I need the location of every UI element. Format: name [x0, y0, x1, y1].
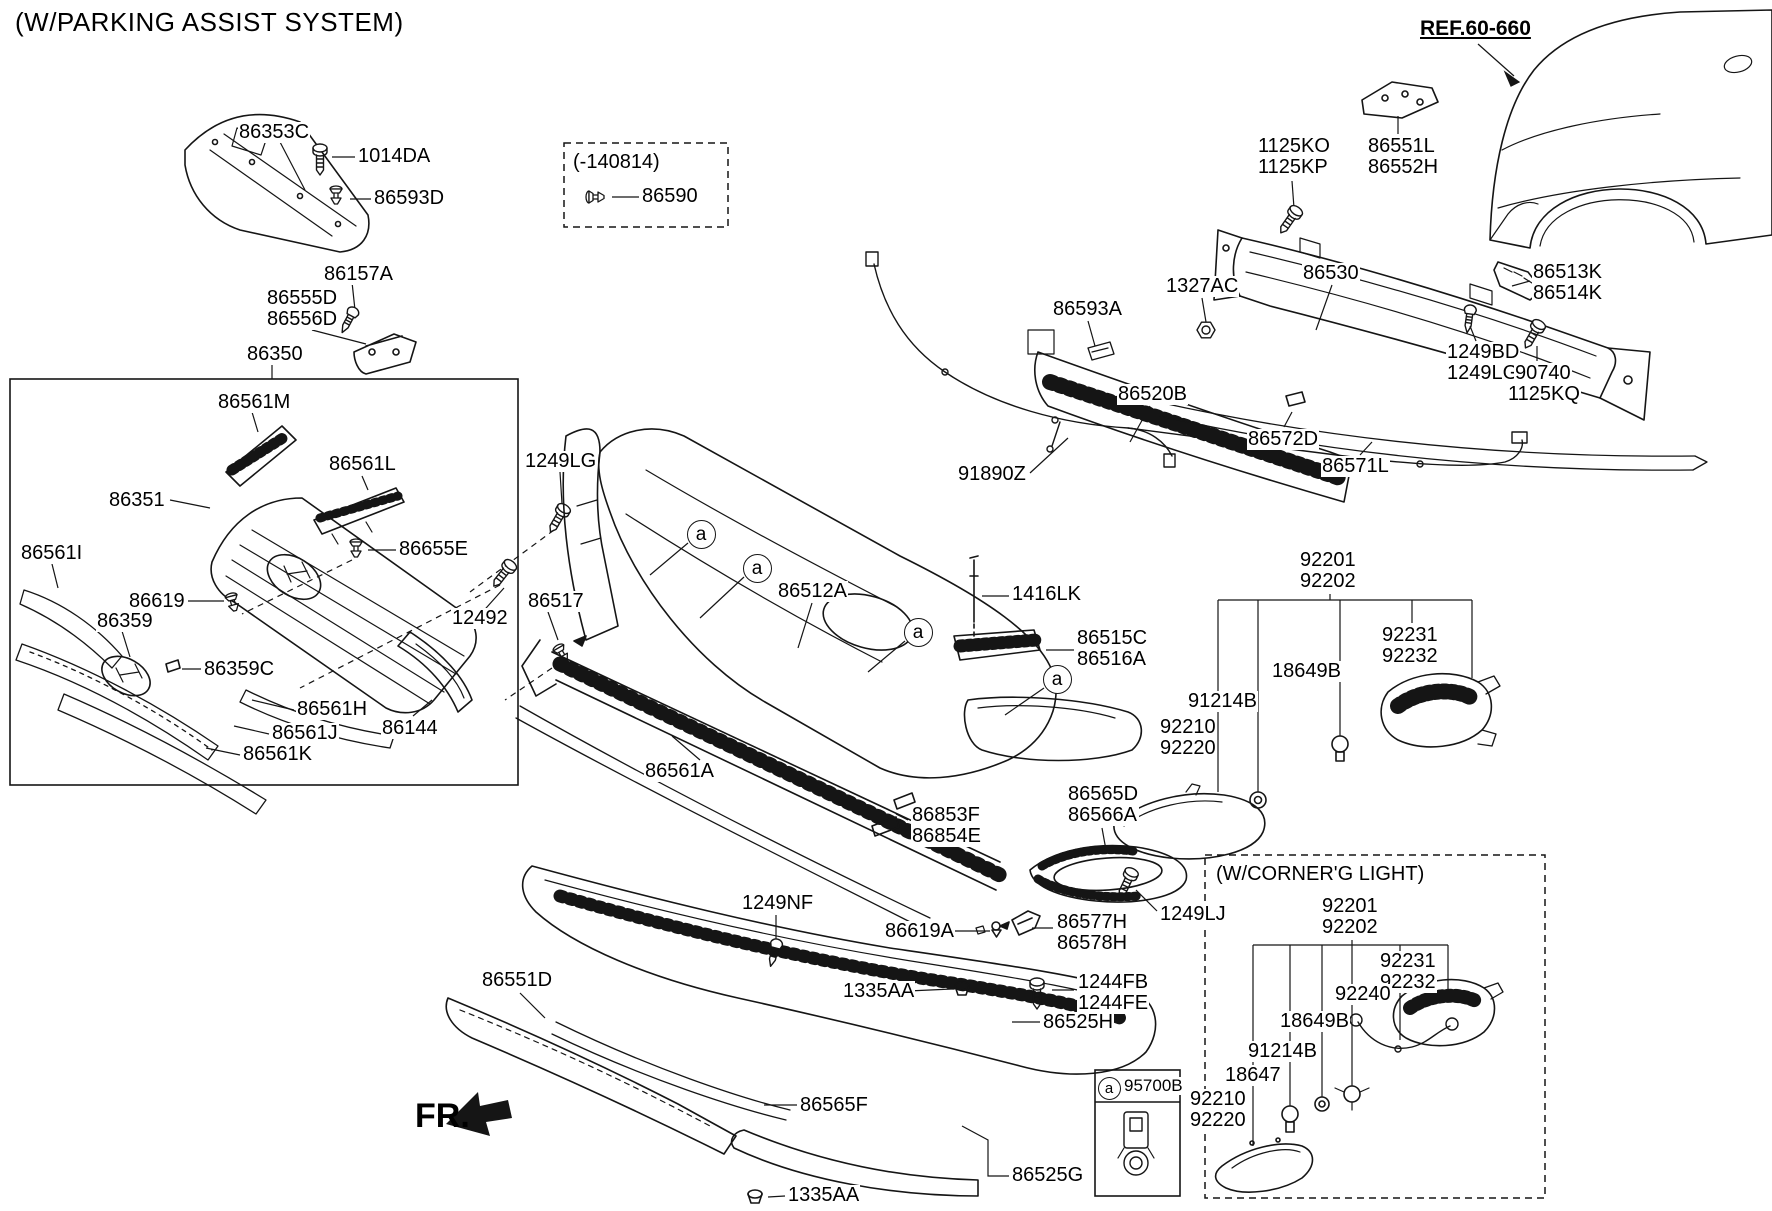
part-label-86853f-86854e: 86853F 86854E	[911, 805, 982, 847]
bezel-86565d-art	[1030, 846, 1187, 902]
part-label-86590: 86590	[641, 186, 699, 207]
main-grille-86351-art	[211, 498, 476, 713]
part-label-86359c: 86359C	[203, 659, 275, 680]
part-label-86593a: 86593A	[1052, 299, 1123, 320]
clip-86359c-art	[166, 660, 180, 672]
grommet-91214b-main-art	[1250, 792, 1266, 808]
bumper-lower-cover-art	[523, 866, 1156, 1074]
part-label-86619a: 86619A	[884, 921, 955, 942]
part-label-86561k: 86561K	[242, 744, 313, 765]
clip-86655e	[350, 539, 362, 557]
part-label-90740: 90740	[1514, 363, 1572, 384]
fr-direction-label: FR.	[414, 1106, 471, 1127]
clip-86590	[586, 191, 604, 203]
part-label-86551l-86552h: 86551L 86552H	[1367, 136, 1439, 178]
clip-1335aa-lower	[748, 1190, 762, 1203]
bracket-86555-art	[354, 334, 416, 374]
part-label-1249lj: 1249LJ	[1159, 904, 1227, 925]
strip-86551d-art	[446, 998, 736, 1154]
absorber-86520b-art	[1028, 330, 1352, 502]
part-label-92201-92202-corner: 92201 92202	[1321, 896, 1379, 938]
parts-diagram: (W/PARKING ASSIST SYSTEM) FR. 86353C1014…	[0, 0, 1772, 1211]
part-label-1249nf: 1249NF	[741, 893, 814, 914]
part-label-86351: 86351	[108, 490, 166, 511]
fender-art	[1490, 10, 1772, 248]
part-label-86555d-86556d: 86555D 86556D	[266, 288, 338, 330]
part-label-86144: 86144	[381, 718, 439, 739]
part-label-91214b-main: 91214B	[1187, 691, 1258, 712]
callout-marker-a-sensor-box: a	[1098, 1077, 1121, 1100]
screw-86157a	[337, 305, 361, 335]
part-label-86565d-86566a: 86565D 86566A	[1067, 784, 1139, 826]
part-label-86530: 86530	[1302, 263, 1360, 284]
clip-86572d-art	[1286, 392, 1305, 406]
part-label-91890z: 91890Z	[957, 464, 1027, 485]
part-label-86572d: 86572D	[1247, 429, 1319, 450]
part-label-92210-92220-main: 92210 92220	[1159, 717, 1217, 759]
part-label-86525g: 86525G	[1011, 1165, 1084, 1186]
corner-bulb-18647-art	[1282, 1106, 1298, 1132]
part-label-86517: 86517	[527, 591, 585, 612]
part-label-1416lk: 1416LK	[1011, 584, 1082, 605]
part-label-86561m: 86561M	[217, 392, 291, 413]
part-label-86571l: 86571L	[1321, 456, 1390, 477]
clip-86593d	[330, 186, 342, 204]
bracket-86551l-art	[1362, 82, 1438, 118]
part-label-corner-title: (W/CORNER'G LIGHT)	[1215, 864, 1425, 885]
insert-86515c-art	[954, 630, 1040, 660]
part-label-1244fb-1244fe: 1244FB 1244FE	[1077, 972, 1149, 1014]
stiffener-86571l-art	[1158, 402, 1707, 470]
part-label-1249lg-left: 1249LG	[524, 451, 597, 472]
foglamp-assy-main-art	[1381, 674, 1500, 747]
part-label-1335aa-lower: 1335AA	[787, 1185, 860, 1206]
part-label-86593d: 86593D	[373, 188, 445, 209]
part-label-1014da: 1014DA	[357, 146, 431, 167]
emblem-86359-art	[95, 648, 157, 703]
bolt-1014da	[313, 144, 327, 175]
part-label-1125kq: 1125KQ	[1507, 384, 1581, 405]
part-label-92210-92220-corner: 92210 92220	[1189, 1089, 1247, 1131]
part-label-86561j: 86561J	[271, 723, 339, 744]
diagram-line-art	[0, 0, 1772, 1211]
part-label-86655e: 86655E	[398, 539, 469, 560]
bumper-beam-86561a-art	[516, 640, 1002, 930]
part-label-1335aa-upper: 1335AA	[842, 981, 915, 1002]
part-label-variant-title: (-140814)	[572, 152, 661, 173]
part-label-86551d: 86551D	[481, 970, 553, 991]
bulb-18649b-main-art	[1332, 736, 1348, 761]
bolt-90740	[1519, 318, 1547, 352]
clip-86593a-art	[1088, 342, 1114, 360]
part-label-86561l: 86561L	[328, 454, 397, 475]
bracket-86577h-art	[1000, 911, 1040, 935]
part-label-18647: 18647	[1224, 1065, 1282, 1086]
part-label-12492: 12492	[451, 608, 509, 629]
callout-marker-a-2: a	[743, 554, 772, 583]
part-label-92231-92232-main: 92231 92232	[1381, 625, 1439, 667]
part-label-86520b: 86520B	[1117, 384, 1188, 405]
part-label-91214b-corner: 91214B	[1247, 1041, 1318, 1062]
callout-marker-a-1: a	[687, 520, 716, 549]
part-label-86577h-86578h: 86577H 86578H	[1056, 912, 1128, 954]
part-label-86512a: 86512A	[777, 581, 848, 602]
part-label-18649b-main: 18649B	[1271, 661, 1342, 682]
bolt-1249lg	[544, 502, 572, 536]
part-label-92240: 92240	[1334, 984, 1392, 1005]
page-title: (W/PARKING ASSIST SYSTEM)	[14, 8, 405, 36]
part-label-86157a: 86157A	[323, 264, 394, 285]
sensor-95700b-art	[1118, 1112, 1154, 1175]
part-label-86565f: 86565F	[799, 1095, 869, 1116]
part-label-1125ko-1125kp: 1125KO 1125KP	[1257, 136, 1331, 178]
corner-foglamp-92210-art	[1216, 1138, 1313, 1192]
part-label-86561h: 86561H	[296, 699, 368, 720]
callout-marker-a-4: a	[1043, 665, 1072, 694]
part-label-86359: 86359	[96, 611, 154, 632]
part-label-86513k-86514k: 86513K 86514K	[1532, 262, 1603, 304]
part-label-86525h: 86525H	[1042, 1012, 1114, 1033]
corner-socket-18649b-art	[1335, 1086, 1369, 1110]
artwork	[16, 10, 1772, 1203]
screw-1249bd	[1461, 304, 1477, 333]
part-label-86619: 86619	[128, 591, 186, 612]
nut-1327ac	[1197, 322, 1215, 338]
bolt-12492	[488, 557, 518, 590]
part-label-86353c: 86353C	[238, 122, 310, 143]
callout-marker-a-3: a	[904, 618, 933, 647]
part-label-ref-60-660: REF.60-660	[1419, 18, 1532, 39]
crossmember-86530-art	[1214, 230, 1650, 420]
part-label-1327ac: 1327AC	[1165, 276, 1239, 297]
part-label-1249bd-1249lg: 1249BD 1249LG	[1446, 342, 1520, 384]
clip-86619a-art	[976, 922, 1001, 937]
bolt-1125ko	[1275, 203, 1304, 236]
part-label-92201-92202-main: 92201 92202	[1299, 550, 1357, 592]
grille-slat-86561m-art	[226, 426, 296, 486]
corner-grommet-91214b-art	[1315, 1097, 1329, 1111]
part-label-86561a: 86561A	[644, 761, 715, 782]
part-label-86350: 86350	[246, 344, 304, 365]
part-label-86561i: 86561I	[20, 543, 83, 564]
part-label-18649b-corner: 18649B	[1279, 1011, 1350, 1032]
part-label-95700b: 95700B	[1123, 1077, 1184, 1095]
part-label-86515c-86516a: 86515C 86516A	[1076, 628, 1148, 670]
